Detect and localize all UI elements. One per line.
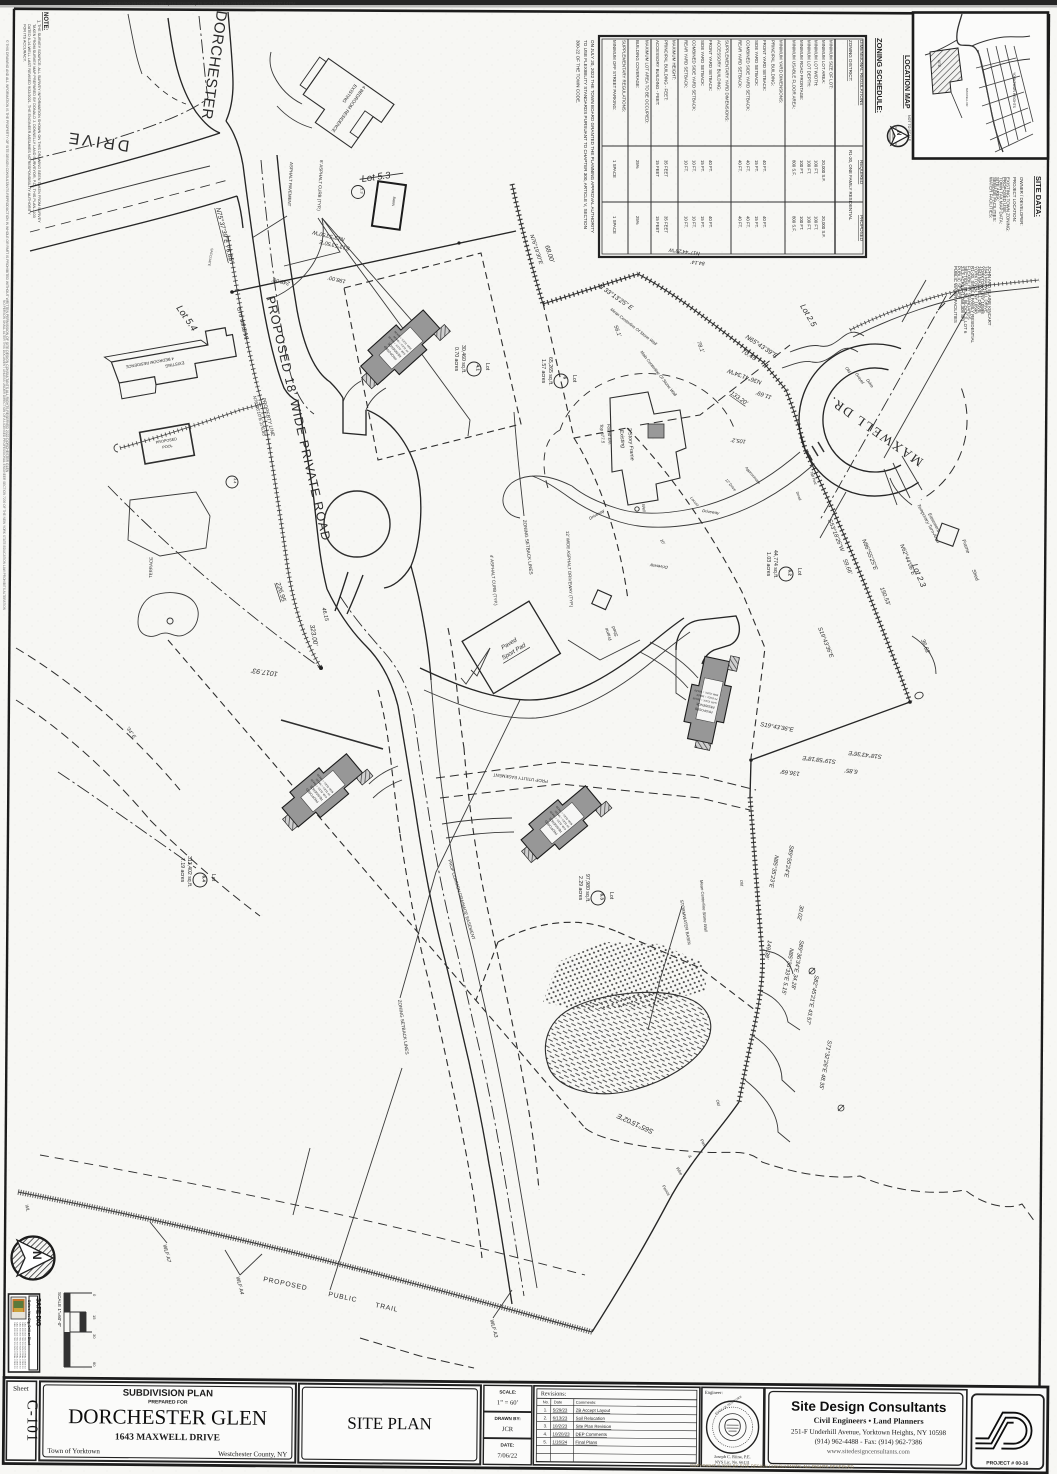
svg-text:FRONT YARD SETBACK:: FRONT YARD SETBACK: (708, 40, 713, 91)
svg-text:SUBDIVISION PLAN: SUBDIVISION PLAN (123, 1388, 213, 1400)
svg-text:ZB Accept Layout: ZB Accept Layout (576, 1408, 611, 1413)
svg-text:1/16/24: 1/16/24 (552, 1439, 567, 1444)
svg-text:CALL 800 962 7962 NY INDUSTRIA: CALL 800 962 7962 NY INDUSTRIAL CODE 53 (21, 1322, 24, 1369)
svg-text:CALL 800 962 7962 NY INDUSTRIA: CALL 800 962 7962 NY INDUSTRIAL CODE 53 (24, 1322, 27, 1369)
svg-text:6.3: 6.3 (600, 894, 605, 901)
svg-text:1 SPACE: 1 SPACE (612, 216, 617, 234)
svg-text:1643 MAXWELL DRIVE: 1643 MAXWELL DRIVE (115, 1433, 220, 1444)
svg-text:20,000 S.F.: 20,000 S.F. (821, 160, 826, 182)
svg-text:NO PERSON SHALL ALTER THIS DOC: NO PERSON SHALL ALTER THIS DOCUMENT UNLE… (2, 300, 6, 611)
svg-text:6.2: 6.2 (788, 570, 793, 577)
svg-text:7.19 acres: 7.19 acres (179, 858, 185, 883)
svg-text:PRINCIPAL BUILDING:: PRINCIPAL BUILDING: (770, 40, 775, 86)
svg-text:251-F Underhill Avenue, Yorkt: 251-F Underhill Avenue, Yorktown Heights… (791, 1428, 947, 1437)
svg-text:REAR YARD SETBACK:: REAR YARD SETBACK: (738, 40, 743, 88)
svg-text:CALL 800 962 7962 NY INDUSTRIA: CALL 800 962 7962 NY INDUSTRIAL CODE 53 (18, 1322, 21, 1369)
svg-text:MINIMUM LOT DEPTH:: MINIMUM LOT DEPTH: (806, 40, 811, 87)
svg-text:ACCESSORY BUILDING - FEET:: ACCESSORY BUILDING - FEET: (655, 40, 660, 105)
svg-text:N: N (30, 1251, 44, 1260)
svg-text:313,402 sq.ft.: 313,402 sq.ft. (186, 856, 192, 887)
svg-text:NOTE:: NOTE: (42, 12, 48, 31)
svg-text:40 FT.: 40 FT. (762, 160, 767, 172)
svg-text:CALL 800 962 7962 NY INDUSTRIA: CALL 800 962 7962 NY INDUSTRIAL CODE 53 (16, 1322, 19, 1369)
svg-text:35 FEET: 35 FEET (663, 216, 668, 233)
svg-text:15 FEET: 15 FEET (655, 160, 660, 177)
svg-text:44,774 sq.ft.: 44,774 sq.ft. (772, 550, 778, 579)
svg-text:Lot: Lot (571, 375, 577, 383)
svg-text:0.70 acres: 0.70 acres (453, 347, 459, 372)
svg-text:15 FT.: 15 FT. (754, 160, 759, 172)
svg-text:Revisions:: Revisions: (541, 1391, 567, 1397)
svg-text:100 FT.: 100 FT. (799, 160, 804, 174)
svg-text:40 FT.: 40 FT. (708, 160, 713, 172)
svg-text:6.4: 6.4 (202, 876, 207, 883)
svg-text:Lot: Lot (796, 568, 802, 576)
svg-text:SUPPLEMENTARY YARD DIMENSIONS:: SUPPLEMENTARY YARD DIMENSIONS: (725, 40, 730, 122)
svg-text:C-101: C-101 (23, 1400, 39, 1443)
svg-text:40 FT.: 40 FT. (746, 160, 751, 172)
svg-text:MINIMUM USABLE FLOOR AREA:: MINIMUM USABLE FLOOR AREA: (792, 40, 797, 109)
svg-text:DIMENSIONAL REGULATIONS: DIMENSIONAL REGULATIONS (859, 40, 864, 105)
svg-text:800 S.F.: 800 S.F. (792, 216, 797, 232)
svg-text:SITE: SITE (937, 60, 941, 67)
svg-text:7/06/22: 7/06/22 (497, 1452, 517, 1459)
svg-text:40 FT.: 40 FT. (746, 216, 751, 228)
svg-text:THE SURVEY SOURCE: ALL SURVEY: THE SURVEY SOURCE: ALL SURVEY INFORMATIO… (37, 24, 41, 223)
svg-text:MINIMUM OFF STREET PARKING:: MINIMUM OFF STREET PARKING: (612, 40, 617, 110)
svg-text:MINIMUM SIZE OF LOT:: MINIMUM SIZE OF LOT: (829, 40, 834, 89)
svg-text:20,000 S.F.: 20,000 S.F. (821, 216, 826, 238)
svg-text:4.1: 4.1 (476, 365, 481, 372)
svg-text:PROPOSED: PROPOSED (859, 215, 864, 242)
svg-text:ON JULY 20, 2022 THE TOWN BOAR: ON JULY 20, 2022 THE TOWN BOARD GRANTED … (590, 40, 595, 233)
svg-text:1.: 1. (37, 20, 42, 24)
svg-text:COMBINED SIDE YARD SETBACK:: COMBINED SIDE YARD SETBACK: (692, 40, 697, 111)
svg-text:5.: 5. (543, 1439, 547, 1444)
svg-text:100 FT.: 100 FT. (814, 216, 819, 230)
svg-text:5.3: 5.3 (360, 188, 365, 194)
svg-text:3.4: 3.4 (233, 478, 237, 484)
svg-text:4.: 4. (543, 1431, 547, 1436)
svg-text:10 FT.: 10 FT. (692, 216, 697, 228)
svg-text:Town of Yorktown: Town of Yorktown (47, 1447, 100, 1455)
svg-text:40 FT.: 40 FT. (738, 160, 743, 172)
svg-text:COMBINED SIDE YARD SETBACK:: COMBINED SIDE YARD SETBACK: (746, 40, 751, 111)
svg-text:SITE DATA:: SITE DATA: (1034, 176, 1043, 217)
svg-text:R1-20, ONE FAMILY RESIDENTIAL: R1-20, ONE FAMILY RESIDENTIAL (848, 150, 853, 221)
svg-text:N: N (895, 131, 901, 135)
svg-text:SIDE YARD SETBACK:: SIDE YARD SETBACK: (700, 40, 705, 86)
svg-text:Soil Relocation: Soil Relocation (576, 1416, 606, 1421)
svg-text:TERRACE: TERRACE (148, 557, 154, 578)
svg-text:www.sitedesigncensultants.com: www.sitedesigncensultants.com (827, 1448, 910, 1456)
svg-text:Site Design Consultants: Site Design Consultants (791, 1399, 946, 1415)
svg-text:Lot: Lot (210, 874, 216, 882)
svg-text:DEP Comments: DEP Comments (575, 1432, 607, 1437)
svg-text:30,460 sq.ft.: 30,460 sq.ft. (460, 345, 466, 374)
svg-text:1 SPACE: 1 SPACE (612, 160, 617, 178)
svg-text:35 FEET: 35 FEET (663, 160, 668, 177)
svg-text:SAFE DIG: SAFE DIG (35, 1298, 41, 1327)
svg-text:PROJECT # 00-16: PROJECT # 00-16 (986, 1460, 1028, 1466)
svg-text:25%: 25% (635, 216, 640, 225)
svg-text:FRONT YARD SETBACK:: FRONT YARD SETBACK: (762, 40, 767, 91)
svg-text:MINIMUM LOT AREA:: MINIMUM LOT AREA: (821, 40, 826, 84)
svg-text:6/13/23: 6/13/23 (553, 1415, 568, 1420)
svg-text:2.29 acres: 2.29 acres (577, 876, 583, 901)
svg-text:60: 60 (92, 1362, 97, 1367)
svg-text:DRAWN BY:: DRAWN BY: (495, 1416, 522, 1421)
svg-text:Well: Well (641, 504, 647, 514)
svg-text:100 FT.: 100 FT. (814, 160, 819, 174)
svg-text:(914) 962-4488 - Fax: (914) 96: (914) 962-4488 - Fax: (914) 962-7386 (815, 1437, 923, 1446)
svg-text:OWNER / DEVELOPER:: OWNER / DEVELOPER: (1019, 177, 1024, 226)
svg-text:15: 15 (92, 1315, 97, 1320)
svg-text:Before You Dig, Drill or Blast: Before You Dig, Drill or Blast (27, 1300, 31, 1346)
svg-text:10 FT.: 10 FT. (684, 160, 689, 172)
svg-text:PROJECT LOCATION:: PROJECT LOCATION: (1012, 177, 1017, 222)
svg-text:30: 30 (92, 1334, 97, 1339)
svg-text:Civil Engineers • Land Planner: Civil Engineers • Land Planners (814, 1416, 924, 1426)
svg-text:SITE PLAN: SITE PLAN (347, 1414, 432, 1434)
svg-text:25%: 25% (635, 160, 640, 169)
svg-text:97,980 sq.ft.: 97,980 sq.ft. (584, 874, 590, 903)
svg-text:SUPPLEMENTARY REGULATIONS:: SUPPLEMENTARY REGULATIONS: (622, 40, 627, 112)
svg-text:MAXIMUM HEIGHT:: MAXIMUM HEIGHT: (672, 40, 677, 80)
svg-text:WATER FACILITIES:: WATER FACILITIES: (988, 177, 993, 218)
svg-text:SCALE:: SCALE: (499, 1389, 517, 1394)
svg-text:FOR ITS ACCURACY.: FOR ITS ACCURACY. (22, 24, 26, 62)
svg-text:MCAD/CADFILES/00-16 DORCHESTER: MCAD/CADFILES/00-16 DORCHESTER (013 WDW5… (90, 1, 296, 6)
svg-text:1.: 1. (544, 1407, 548, 1412)
svg-text:MAXIMUM LOT AREA TO BE OCCUPIE: MAXIMUM LOT AREA TO BE OCCUPIED: (645, 40, 650, 123)
svg-text:15 FT.: 15 FT. (754, 216, 759, 228)
svg-text:BUILDING COVERAGE:: BUILDING COVERAGE: (635, 40, 640, 88)
svg-text:1.57 acres: 1.57 acres (540, 359, 546, 384)
svg-text:10 FT.: 10 FT. (692, 160, 697, 172)
svg-text:1” = 60’: 1” = 60’ (497, 1399, 519, 1406)
svg-text:10 FT.: 10 FT. (684, 216, 689, 228)
svg-text:Lot: Lot (608, 892, 614, 900)
svg-text:No.: No. (543, 1399, 549, 1404)
svg-text:ZONING SCHEDULE:: ZONING SCHEDULE: (875, 38, 884, 113)
svg-text:MINIMUM ROAD FRONTAGE:: MINIMUM ROAD FRONTAGE: (799, 40, 804, 100)
svg-text:MINIMUM LOT WIDTH:: MINIMUM LOT WIDTH: (814, 40, 819, 86)
svg-text:Lot: Lot (484, 363, 490, 371)
svg-text:Comments:: Comments: (576, 1400, 596, 1405)
svg-text:REAR YARD SETBACK:: REAR YARD SETBACK: (684, 40, 689, 88)
svg-text:REQUIRED: REQUIRED (859, 160, 864, 185)
svg-text:CALL 800 962 7962 NY INDUSTRIA: CALL 800 962 7962 NY INDUSTRIAL CODE 53 (13, 1322, 16, 1369)
svg-text:SCALE 1”=60’-0”: SCALE 1”=60’-0” (57, 1292, 62, 1327)
svg-text:MAXWELL DR: MAXWELL DR (965, 88, 969, 106)
svg-text:TAKEN FROM SURVEY MAP PREPARED: TAKEN FROM SURVEY MAP PREPARED BY DONALD… (32, 24, 36, 218)
svg-text:10/20/23: 10/20/23 (552, 1431, 570, 1436)
svg-text:MINIMUM YARD DIMENSIONS:: MINIMUM YARD DIMENSIONS: (779, 40, 784, 103)
svg-text:1.03 acres: 1.03 acres (765, 552, 771, 577)
svg-text:JCR: JCR (502, 1426, 514, 1433)
svg-text:15 FT.: 15 FT. (700, 160, 705, 172)
svg-text:40 FT.: 40 FT. (738, 216, 743, 228)
svg-text:2.: 2. (544, 1415, 548, 1420)
svg-text:LOCATION MAP: LOCATION MAP (903, 55, 910, 109)
svg-text:800 S.F.: 800 S.F. (792, 160, 797, 176)
svg-text:5/29/23: 5/29/23 (553, 1407, 568, 1412)
svg-text:TO USE FLEXIBILITY STANDARDS P: TO USE FLEXIBILITY STANDARDS PURSUANT TO… (583, 40, 588, 229)
svg-text:Date: Date (554, 1399, 563, 1404)
svg-text:100 FT.: 100 FT. (806, 160, 811, 174)
svg-text:6: 6 (563, 377, 568, 380)
svg-text:Westchester County, NY: Westchester County, NY (218, 1450, 287, 1459)
svg-text:15 FT.: 15 FT. (700, 216, 705, 228)
svg-text:Final Plans: Final Plans (575, 1440, 598, 1445)
svg-text:40 FT.: 40 FT. (762, 216, 767, 228)
svg-text:40 FT.: 40 FT. (708, 216, 713, 228)
svg-text:300-22 OF THE TOWN CODE.: 300-22 OF THE TOWN CODE. (576, 40, 581, 103)
svg-text:10/2/23: 10/2/23 (553, 1423, 568, 1428)
svg-text:ACCESSORY BUILDING:: ACCESSORY BUILDING: (716, 40, 721, 91)
svg-text:100 FT.: 100 FT. (806, 216, 811, 230)
svg-text:Site Plan Revision: Site Plan Revision (576, 1424, 612, 1429)
svg-text:YORKTOWN HEIGHTS: YORKTOWN HEIGHTS (1012, 72, 1016, 109)
svg-text:Engineer:: Engineer: (705, 1390, 723, 1395)
svg-text:Sheet: Sheet (13, 1385, 29, 1393)
svg-text:DORCHESTER GLEN: DORCHESTER GLEN (68, 1404, 267, 1430)
svg-text:65,265 sq.ft.: 65,265 sq.ft. (547, 357, 553, 386)
svg-text:15 FEET: 15 FEET (655, 216, 660, 233)
svg-text:DATE:: DATE: (501, 1443, 515, 1448)
svg-text:SIDE YARD SETBACK:: SIDE YARD SETBACK: (754, 40, 759, 86)
svg-text:PRINCIPAL BUILDING - FEET:: PRINCIPAL BUILDING - FEET: (663, 40, 668, 101)
svg-text:ZONING DISTRICT:: ZONING DISTRICT: (848, 40, 853, 81)
svg-text:100 FT.: 100 FT. (799, 216, 804, 230)
svg-text:3.: 3. (544, 1423, 548, 1428)
